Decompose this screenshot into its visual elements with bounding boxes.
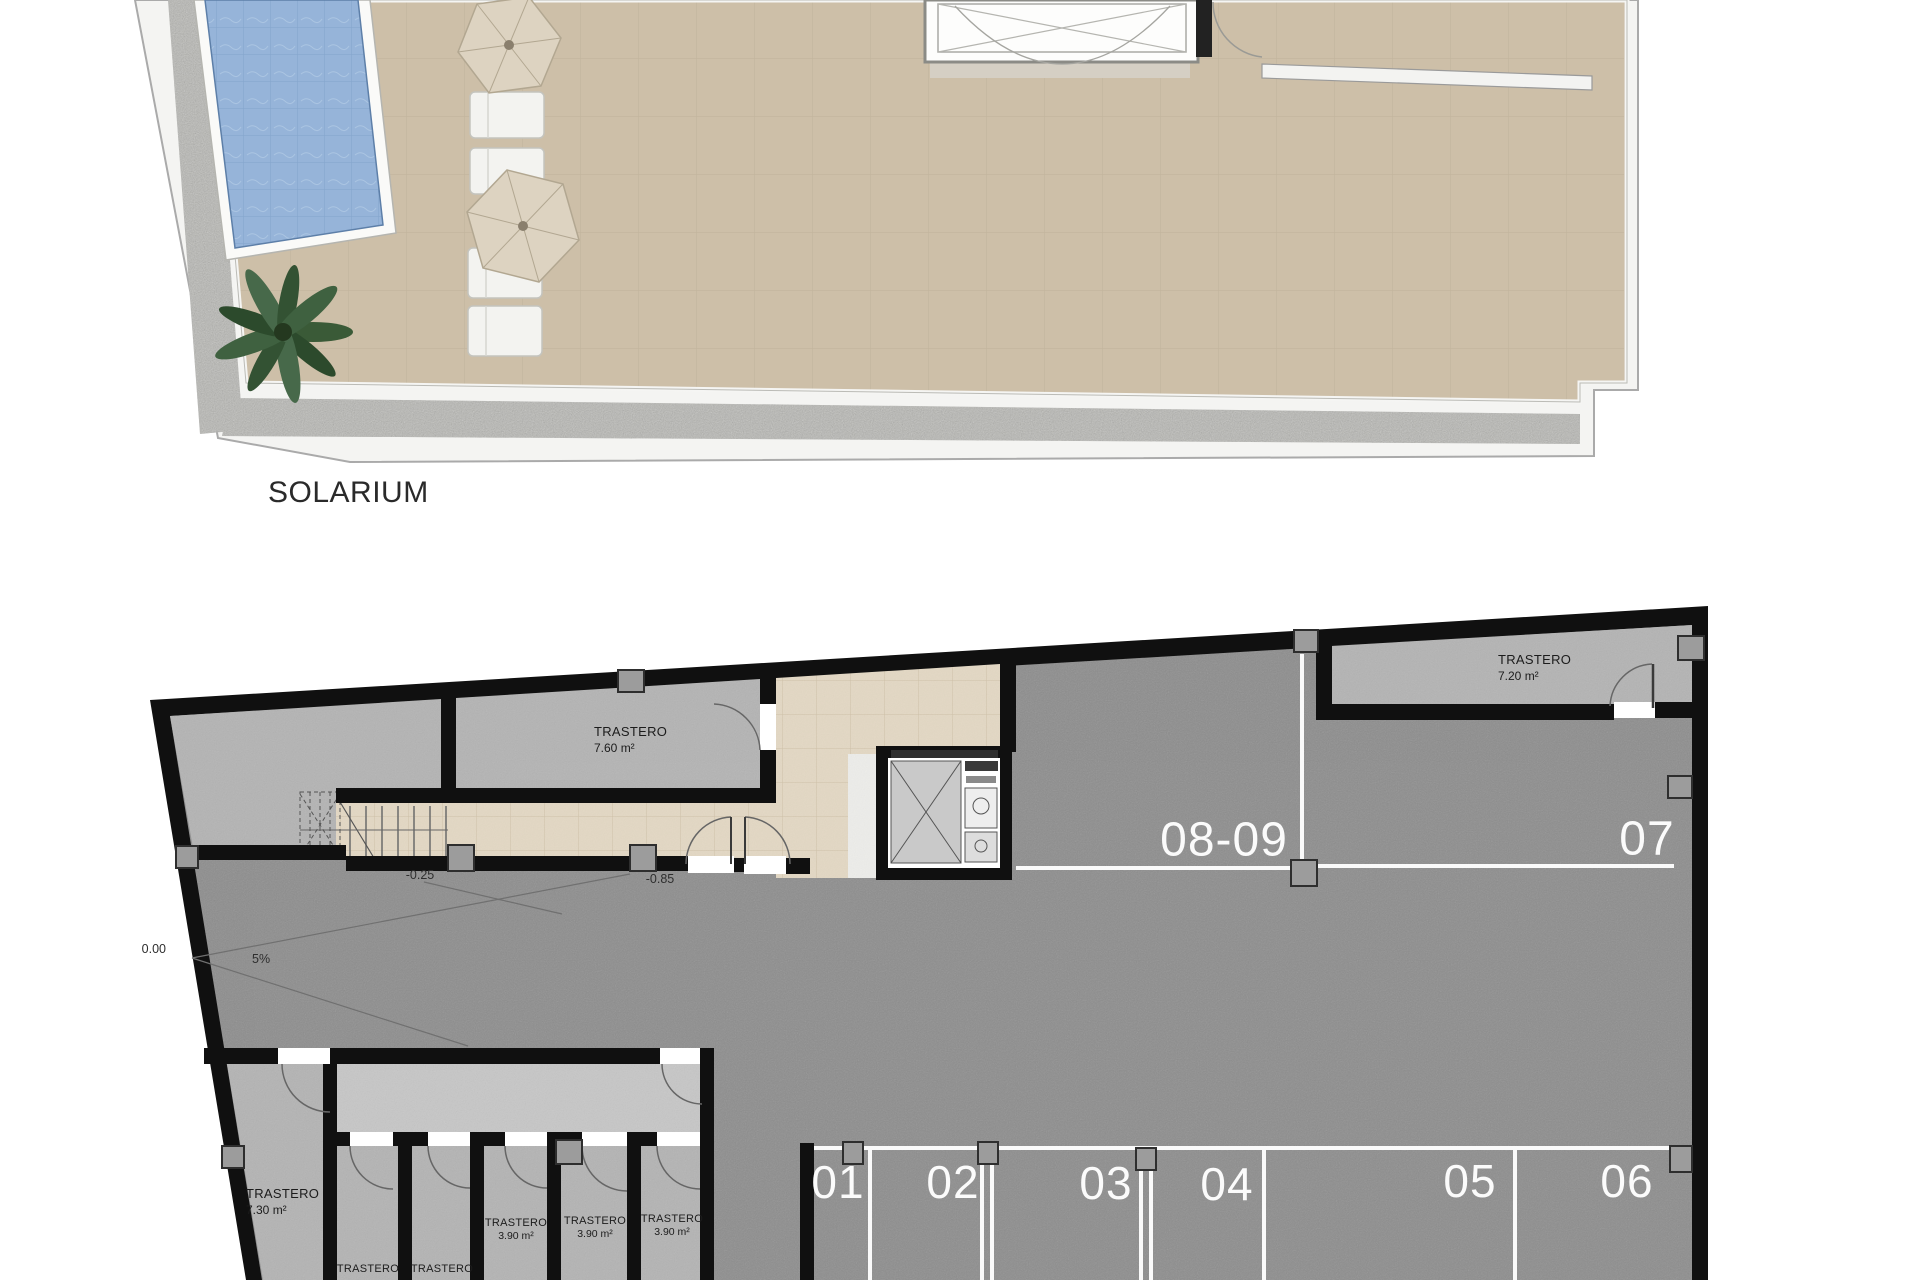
storage-area: 7.30 m² [246,1203,319,1219]
storage-name: TRASTERO [485,1216,547,1230]
storage-area: 7.60 m² [594,741,667,757]
storage-area: 3.90 m² [485,1230,547,1244]
elevator-machinery [965,761,998,862]
level-garage: -0.85 [646,872,675,886]
ramp-slope-label: 5% [252,952,270,966]
storage-name: TRASTERO [594,724,667,741]
parking-space-01: 01 [811,1155,864,1209]
storage-cell2-label: TRASTERO [411,1262,473,1276]
floor-plan-page: SOLARIUM TRASTERO 7.60 m² TRASTERO 7.20 … [0,0,1920,1280]
storage-area: 3.90 m² [564,1228,626,1242]
storage-area: 3.90 m² [641,1226,703,1240]
storage-cell3-label: TRASTERO 3.90 m² [485,1216,547,1244]
storage-name: TRASTERO [411,1262,473,1276]
skylight [925,0,1198,78]
parking-space-06: 06 [1600,1154,1653,1208]
parking-space-02: 02 [926,1155,979,1209]
storage-720-label: TRASTERO 7.20 m² [1498,652,1571,684]
storage-name: TRASTERO [1498,652,1571,669]
lounger [470,92,544,138]
storage-cell5-label: TRASTERO 3.90 m² [641,1212,703,1240]
storage-area: 7.20 m² [1498,669,1571,685]
storage-name: TRASTERO [641,1212,703,1226]
level-entry: 0.00 [118,942,166,956]
parking-space-04: 04 [1200,1157,1253,1211]
storage-name: TRASTERO [564,1214,626,1228]
storage-name: TRASTERO [337,1262,399,1276]
wall-stub [1196,0,1212,57]
elevator [876,746,1012,880]
pool-water [205,0,383,248]
storage-730-label: TRASTERO 7.30 m² [246,1186,319,1218]
storage-cell4-label: TRASTERO 3.90 m² [564,1214,626,1242]
parking-space-05: 05 [1443,1154,1496,1208]
parking-space-03: 03 [1079,1156,1132,1210]
floor-plan-drawing [0,0,1920,1280]
pool [194,0,396,260]
lounger [468,306,542,356]
parking-space-07: 07 [1619,812,1674,867]
storage-name: TRASTERO [246,1186,319,1203]
level-landing: -0.25 [406,868,435,882]
storage-cell1-label: TRASTERO [337,1262,399,1276]
parking-space-08-09: 08-09 [1160,813,1288,868]
solarium-plan [135,0,1638,462]
storage-760-label: TRASTERO 7.60 m² [594,724,667,756]
solarium-deck [213,0,1627,402]
solarium-label: SOLARIUM [268,476,429,510]
